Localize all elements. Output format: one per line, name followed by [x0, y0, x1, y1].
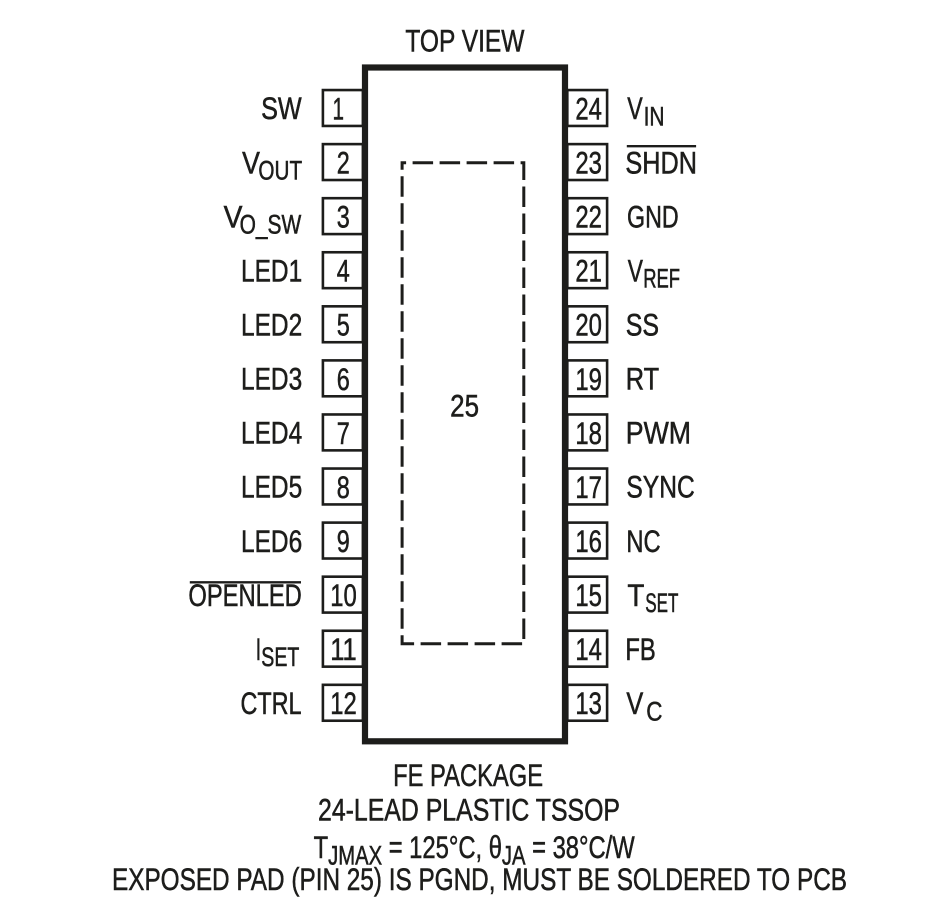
svg-text:25: 25 — [450, 387, 479, 423]
svg-text:3: 3 — [337, 199, 350, 235]
svg-text:LED4: LED4 — [241, 415, 302, 451]
svg-text:T: T — [314, 829, 329, 865]
svg-text:FE PACKAGE: FE PACKAGE — [393, 757, 543, 793]
svg-text:O_SW: O_SW — [240, 210, 302, 240]
svg-text:PWM: PWM — [626, 415, 691, 451]
svg-text:SET: SET — [645, 588, 678, 618]
svg-text:FB: FB — [625, 631, 655, 667]
svg-text:6: 6 — [337, 361, 350, 397]
svg-text:23: 23 — [575, 144, 602, 180]
svg-text:NC: NC — [626, 523, 660, 559]
svg-text:16: 16 — [575, 523, 602, 559]
svg-text:LED5: LED5 — [241, 469, 302, 505]
svg-text:TOP VIEW: TOP VIEW — [405, 23, 524, 59]
svg-text:14: 14 — [575, 631, 602, 667]
svg-text:20: 20 — [575, 307, 602, 343]
svg-text:5: 5 — [337, 307, 350, 343]
svg-text:T: T — [627, 577, 644, 613]
svg-text:22: 22 — [575, 199, 602, 235]
svg-text:21: 21 — [575, 253, 602, 289]
svg-text:1: 1 — [332, 90, 344, 126]
svg-text:7: 7 — [337, 415, 350, 451]
svg-text:= 38°C/W: = 38°C/W — [532, 829, 635, 865]
svg-text:9: 9 — [337, 523, 350, 559]
svg-text:V: V — [628, 252, 643, 288]
svg-text:REF: REF — [643, 264, 680, 294]
svg-text:CTRL: CTRL — [241, 685, 302, 721]
svg-text:4: 4 — [337, 253, 350, 289]
svg-text:EXPOSED PAD (PIN 25) IS PGND,: EXPOSED PAD (PIN 25) IS PGND, MUST BE SO… — [112, 861, 847, 897]
svg-text:V: V — [627, 90, 642, 126]
svg-text:I: I — [256, 631, 261, 667]
svg-text:SS: SS — [626, 306, 659, 342]
svg-text:10: 10 — [330, 577, 357, 613]
svg-text:SW: SW — [261, 90, 302, 126]
svg-text:IN: IN — [644, 102, 665, 132]
svg-text:LED6: LED6 — [241, 523, 302, 559]
svg-text:SHDN: SHDN — [625, 144, 697, 180]
svg-text:V: V — [242, 144, 260, 180]
svg-text:LED3: LED3 — [241, 361, 302, 397]
svg-text:V: V — [626, 685, 643, 721]
svg-text:LED1: LED1 — [241, 252, 302, 288]
svg-text:24: 24 — [575, 90, 602, 126]
svg-text:12: 12 — [330, 685, 357, 721]
svg-text:17: 17 — [575, 469, 602, 505]
svg-text:18: 18 — [575, 415, 602, 451]
svg-text:11: 11 — [330, 631, 357, 667]
svg-text:C: C — [646, 696, 662, 726]
svg-text:SET: SET — [261, 642, 299, 672]
svg-text:RT: RT — [626, 361, 659, 397]
svg-text:13: 13 — [575, 685, 602, 721]
svg-text:SYNC: SYNC — [626, 469, 694, 505]
svg-text:15: 15 — [575, 577, 602, 613]
svg-text:OPENLED: OPENLED — [188, 577, 301, 613]
svg-text:= 125°C,: = 125°C, — [389, 829, 482, 865]
svg-text:24-LEAD PLASTIC TSSOP: 24-LEAD PLASTIC TSSOP — [318, 792, 620, 828]
svg-text:OUT: OUT — [258, 156, 302, 186]
svg-text:GND: GND — [627, 198, 679, 234]
svg-text:LED2: LED2 — [241, 306, 302, 342]
svg-text:19: 19 — [575, 361, 602, 397]
svg-text:2: 2 — [337, 144, 350, 180]
svg-text:8: 8 — [337, 469, 350, 505]
svg-text:θ: θ — [489, 829, 502, 865]
